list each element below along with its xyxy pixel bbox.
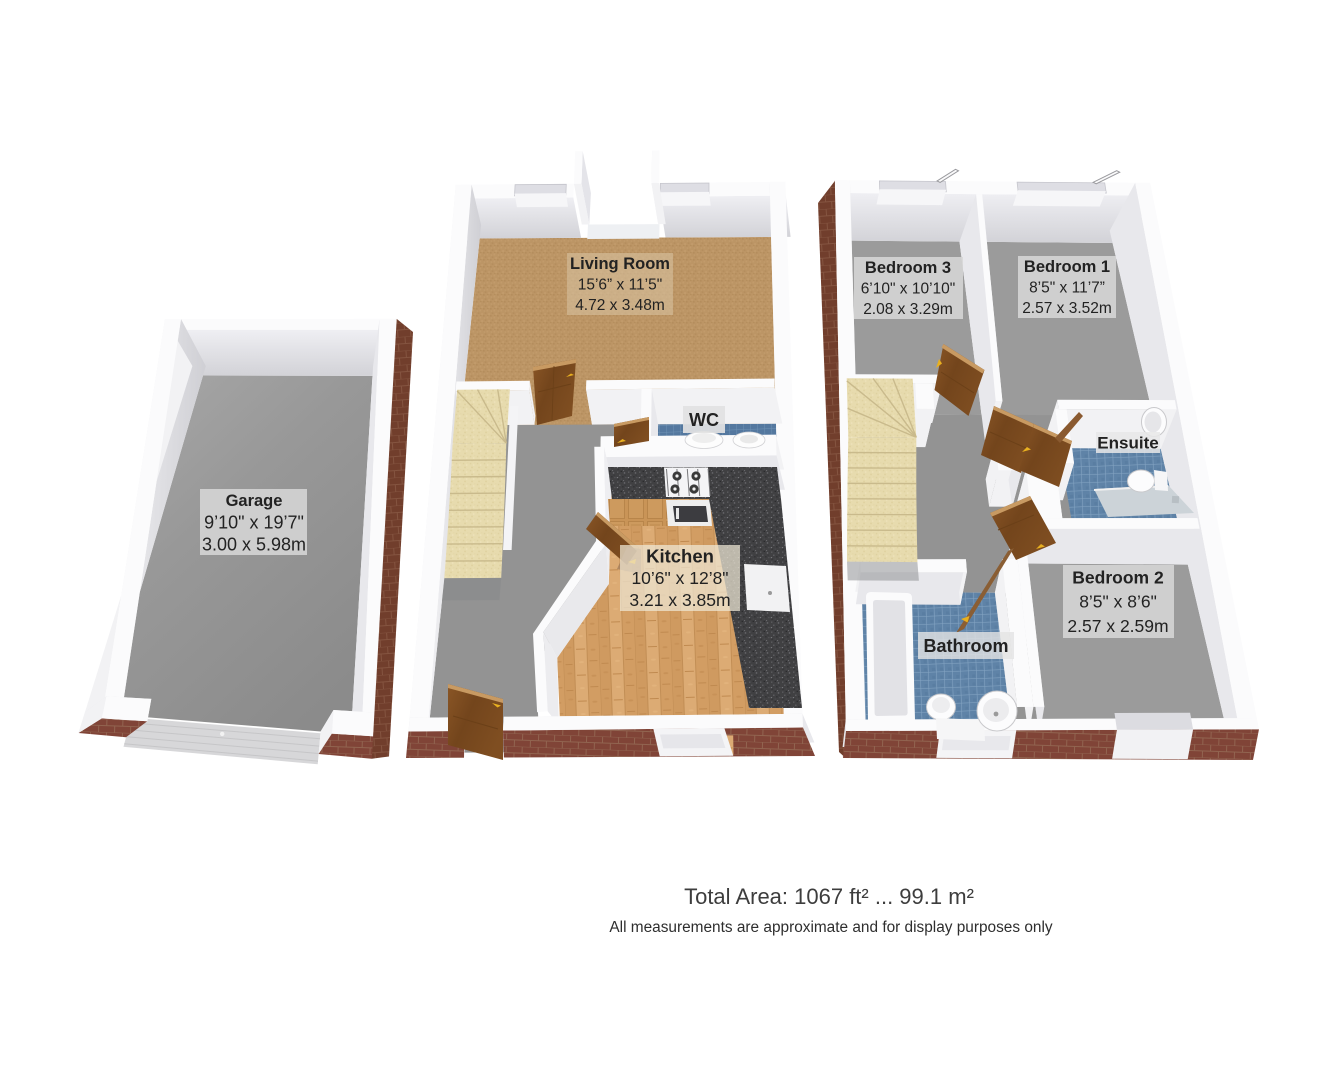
svg-text:Total Area: 1067 ft² ... 99.1: Total Area: 1067 ft² ... 99.1 m² [684,884,974,909]
svg-text:WC: WC [689,410,719,430]
svg-text:8’5" x 8’6": 8’5" x 8’6" [1079,592,1157,612]
svg-text:Kitchen: Kitchen [646,546,714,567]
svg-text:10’6" x 12’8": 10’6" x 12’8" [631,568,728,588]
svg-text:Bedroom 2: Bedroom 2 [1072,567,1164,587]
svg-text:Bedroom 1: Bedroom 1 [1024,258,1110,276]
svg-text:Ensuite: Ensuite [1097,433,1158,452]
svg-text:8’5" x 11’7”: 8’5" x 11’7” [1029,279,1105,296]
svg-text:3.00 x 5.98m: 3.00 x 5.98m [202,534,306,554]
svg-text:2.57 x 3.52m: 2.57 x 3.52m [1022,300,1112,317]
svg-text:4.72 x 3.48m: 4.72 x 3.48m [575,297,665,314]
svg-text:All measurements are approxima: All measurements are approximate and for… [609,919,1052,936]
svg-text:6’10" x 10’10": 6’10" x 10’10" [861,280,956,297]
svg-text:Garage: Garage [226,492,283,510]
svg-text:15’6” x 11’5": 15’6” x 11’5" [578,276,663,293]
svg-text:2.08 x 3.29m: 2.08 x 3.29m [863,301,953,318]
svg-text:2.57 x 2.59m: 2.57 x 2.59m [1067,616,1168,636]
svg-text:Bathroom: Bathroom [924,636,1009,656]
svg-text:Bedroom 3: Bedroom 3 [865,259,951,277]
svg-text:9’10" x 19’7": 9’10" x 19’7" [204,512,304,532]
svg-text:Living Room: Living Room [570,255,670,273]
svg-text:3.21 x 3.85m: 3.21 x 3.85m [629,590,730,610]
